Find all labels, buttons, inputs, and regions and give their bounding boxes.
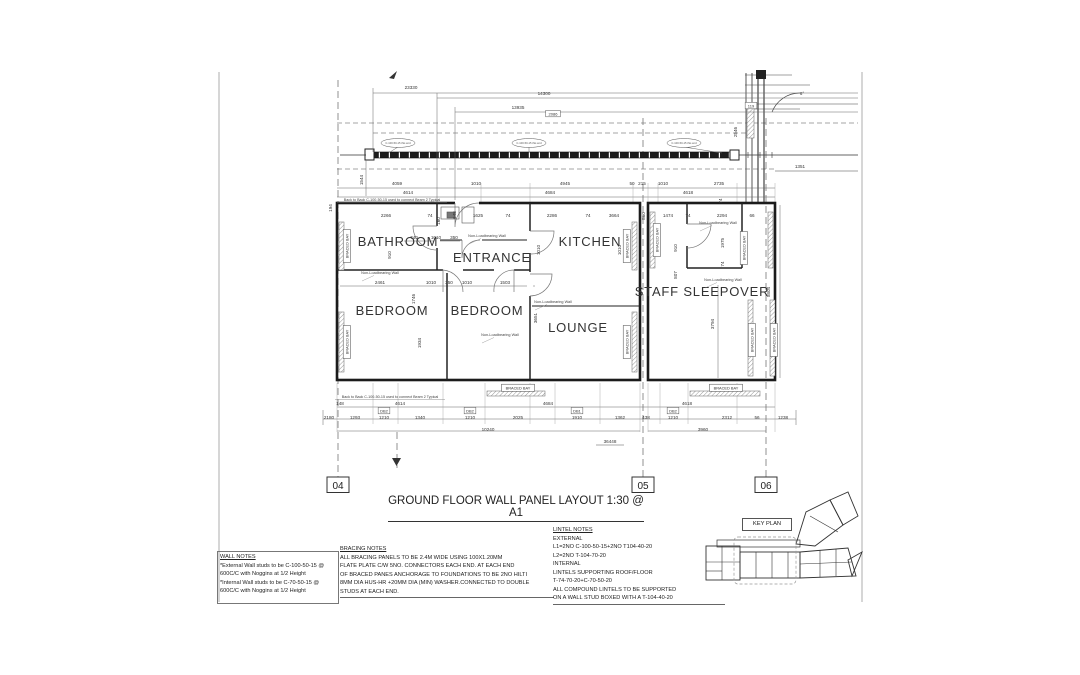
annotation-layer: BATHROOMENTRANCEKITCHENBEDROOMBEDROOMLOU… xyxy=(324,85,806,493)
non-loadbearing-wall-label: Non-Loadbearing Wall xyxy=(534,300,572,304)
dimension-label: 2735 xyxy=(714,181,725,186)
dimension-label: 36448 xyxy=(604,439,617,444)
beam-connection-note: Back to Back C-100-50-15 used to connect… xyxy=(342,395,439,399)
dimension-label: 1625 xyxy=(473,213,484,218)
dimension-label: 74 xyxy=(720,261,725,267)
braced-bay-label: BRACED BAY xyxy=(772,327,777,352)
non-loadbearing-wall-label: Non-Loadbearing Wall xyxy=(361,271,399,275)
dimension-label: 910 xyxy=(673,244,678,252)
dimension-label: 4059 xyxy=(392,181,403,186)
grid-marker-label: 05 xyxy=(637,481,649,492)
ridge-beam xyxy=(340,149,858,160)
braced-bay-label: BRACED BAY xyxy=(625,233,630,258)
dimension-label: 1746 xyxy=(411,293,416,304)
bathroom-fixtures xyxy=(441,207,474,223)
grid-marker-label: 06 xyxy=(760,481,772,492)
dimension-label: 2286 xyxy=(547,213,558,218)
room-label: BEDROOM xyxy=(356,303,429,318)
dimension-label: 4684 xyxy=(545,190,556,195)
dimension-label: 13935 xyxy=(512,105,525,110)
wall-notes-line: *Internal Wall studs to be C-70-50-15 @ xyxy=(220,580,319,586)
room-label: KITCHEN xyxy=(559,234,622,249)
panel-tag-label: DB1 xyxy=(573,409,582,414)
dimension-label: 1010 xyxy=(471,181,482,186)
lintel-notes-line: T-74-70-20+C-70-50-20 xyxy=(553,578,612,584)
dimension-label: 215 xyxy=(638,181,646,186)
wall-notes-line: *External Wall studs to be C-100-50-15 @ xyxy=(220,563,324,569)
dimension-label: 1910 xyxy=(572,415,583,420)
lintel-notes-line: LINTELS SUPPORTING ROOF/FLOOR xyxy=(553,570,653,576)
lintel-notes: LINTEL NOTES EXTERNAL L1=2NO C-100-50-15… xyxy=(553,526,725,605)
dimension-label: 350 xyxy=(445,280,453,285)
dimension-label: 66 xyxy=(749,213,755,218)
dimension-label: 2294 xyxy=(717,213,728,218)
dimension-label: 1351 xyxy=(795,164,806,169)
lintel-notes-line: L2=2NO T-104-70-20 xyxy=(553,553,606,559)
wall-notes: WALL NOTES *External Wall studs to be C-… xyxy=(217,551,339,604)
dimension-label: 74 xyxy=(427,213,433,218)
drawing-sheet: BATHROOMENTRANCEKITCHENBEDROOMBEDROOMLOU… xyxy=(0,0,1080,675)
panel-tag-label: DB2 xyxy=(669,409,678,414)
lintel-notes-line: EXTERNAL xyxy=(553,536,583,542)
lintel-notes-line: INTERNAL xyxy=(553,561,581,567)
dimension-label: 3960 xyxy=(698,427,709,432)
dimension-label: 1010 xyxy=(431,235,442,240)
dimension-label: 860 xyxy=(641,212,646,220)
wall-notes-line: 600C/C with Noggins at 1/2 Height xyxy=(220,588,306,594)
dimension-label: 1010 xyxy=(536,244,541,255)
dimension-label: 2025 xyxy=(513,415,524,420)
dimension-label: 23330 xyxy=(405,85,418,90)
dimension-label: 1238 xyxy=(778,415,789,420)
bracing-notes-title: BRACING NOTES xyxy=(340,545,554,554)
dimension-label: 350 xyxy=(450,235,458,240)
dimension-label: 1474 xyxy=(663,213,674,218)
dimension-label: 160 xyxy=(436,217,441,225)
dimension-label: 74 xyxy=(718,198,723,204)
braced-bay-label: BRACED BAY xyxy=(742,235,747,260)
non-loadbearing-wall-label: Non-Loadbearing Wall xyxy=(468,234,506,238)
room-label: ENTRANCE xyxy=(453,250,531,265)
beam-callout-label: C-100-50-15 this end xyxy=(671,141,697,145)
dimension-label: 194 xyxy=(328,204,333,212)
dimension-label: 4618 xyxy=(682,401,693,406)
bracing-notes-line: ALL BRACING PANELS TO BE 2.4M WIDE USING… xyxy=(340,555,502,561)
bracing-notes-line: FLATE PLATE C/W 5NO. CONNECTORS EACH END… xyxy=(340,563,514,569)
dimension-label: 910 xyxy=(387,251,392,259)
dimension-label: 1010 xyxy=(658,181,669,186)
dimension-label: 3664 xyxy=(609,213,620,218)
dimension-label: 56 xyxy=(754,415,760,420)
panel-tag-label: 119 xyxy=(748,104,755,109)
dimension-label: 2312 xyxy=(722,415,733,420)
dimension-label: 3794 xyxy=(710,318,715,329)
dimension-label: 1293 xyxy=(350,415,361,420)
dimension-label: 438 xyxy=(642,415,650,420)
dimension-label: 648 xyxy=(452,211,457,219)
braced-bay-label: BRACED BAY xyxy=(345,233,350,258)
dimension-label: 1362 xyxy=(615,415,626,420)
dimension-label: 4945 xyxy=(560,181,571,186)
top-right-detail xyxy=(745,70,858,203)
room-label: STAFF SLEEPOVER xyxy=(635,284,770,299)
bracing-notes: BRACING NOTES ALL BRACING PANELS TO BE 2… xyxy=(340,545,554,598)
dimension-label: 1503 xyxy=(500,280,511,285)
dimension-label: 74 xyxy=(505,213,511,218)
braced-bay-label: BRACED BAY xyxy=(714,386,739,391)
room-label: BATHROOM xyxy=(358,234,439,249)
room-label: BEDROOM xyxy=(451,303,524,318)
grid-marker-label: 04 xyxy=(332,481,344,492)
key-plan-label: KEY PLAN xyxy=(742,518,792,531)
dimension-label: 1210 xyxy=(465,415,476,420)
dimension-label: 50 xyxy=(629,181,635,186)
dimension-label: 1934 xyxy=(417,337,422,348)
wall-notes-line: 600C/C with Noggins at 1/2 Height xyxy=(220,571,306,577)
bracing-notes-line: STUDS AT EACH END. xyxy=(340,589,399,595)
braced-bay-label: BRACED BAY xyxy=(655,227,660,252)
dimension-label: 1544 xyxy=(359,174,364,185)
beam-callout-label: C-100-50-15 this end xyxy=(516,141,542,145)
dimension-label: 74 xyxy=(585,213,591,218)
dimension-label: 10240 xyxy=(482,427,495,432)
lintel-notes-line: ALL COMPOUND LINTELS TO BE SUPPORTED xyxy=(553,587,676,593)
dimension-label: 3651 xyxy=(533,312,538,323)
panel-tag-label: DB2 xyxy=(380,409,389,414)
braced-bay-label: BRACED BAY xyxy=(625,329,630,354)
setting-out-lines xyxy=(337,123,858,169)
dimension-label: 14300 xyxy=(538,91,551,96)
dimension-label: 148 xyxy=(336,401,344,406)
dimension-label: 2461 xyxy=(375,280,386,285)
dimension-label: 1975 xyxy=(720,237,725,248)
dimension-label: 2546 xyxy=(733,126,738,137)
dimension-label: 1210 xyxy=(668,415,679,420)
dimension-label: 1010 xyxy=(426,280,437,285)
dimension-label: 4614 xyxy=(403,190,414,195)
dimension-label: 5804 xyxy=(766,286,771,297)
dimension-label: 2266 xyxy=(381,213,392,218)
bracing-notes-line: OF BRACED PANES ANCHORAGE TO FOUNDATIONS… xyxy=(340,572,527,578)
braced-bay-label: BRACED BAY xyxy=(506,386,531,391)
lintel-notes-line: L1=2NO C-100-50-15+2NO T104-40-20 xyxy=(553,544,652,550)
room-label: LOUNGE xyxy=(548,320,608,335)
dimension-label: 74 xyxy=(685,213,691,218)
panel-tag-label: DB2 xyxy=(466,409,475,414)
non-loadbearing-wall-label: Non-Loadbearing Wall xyxy=(481,333,519,337)
dimension-label: 1010 xyxy=(617,244,622,255)
bracing-notes-line: 8MM DIA HUS-HR +20MM DIA (MIN) WASHER.CO… xyxy=(340,580,529,586)
non-loadbearing-wall-label: Non-Loadbearing Wall xyxy=(699,221,737,225)
dimension-label: 740 xyxy=(410,235,418,240)
dimension-label: 1210 xyxy=(379,415,390,420)
braced-bay-label: BRACED BAY xyxy=(750,327,755,352)
wall-notes-title: WALL NOTES xyxy=(220,553,336,562)
lintel-notes-title: LINTEL NOTES xyxy=(553,526,725,535)
drawing-title: GROUND FLOOR WALL PANEL LAYOUT 1:30 @ A1 xyxy=(388,495,644,522)
roof-angle-label: 6° xyxy=(800,91,805,96)
non-loadbearing-wall-label: Non-Loadbearing Wall xyxy=(704,278,742,282)
dimension-label: 1340 xyxy=(415,415,426,420)
lintel-notes-line: ON A WALL STUD BOXED WITH A T-104-40-20 xyxy=(553,595,673,601)
key-plan xyxy=(706,492,862,584)
dimension-label: 807 xyxy=(673,271,678,279)
beam-callout-label: C-100-50-15 this end xyxy=(385,141,411,145)
panel-tag-label: 2086 xyxy=(549,112,559,117)
dimension-label: 2180 xyxy=(324,415,335,420)
dimension-label: 4618 xyxy=(683,190,694,195)
dimension-label: 4684 xyxy=(543,401,554,406)
braced-bay-label: BRACED BAY xyxy=(345,329,350,354)
beam-connection-note: Back to Back C-100-50-15 used to connect… xyxy=(344,198,441,202)
dimension-label: 1010 xyxy=(462,280,473,285)
dimension-label: 4614 xyxy=(395,401,406,406)
